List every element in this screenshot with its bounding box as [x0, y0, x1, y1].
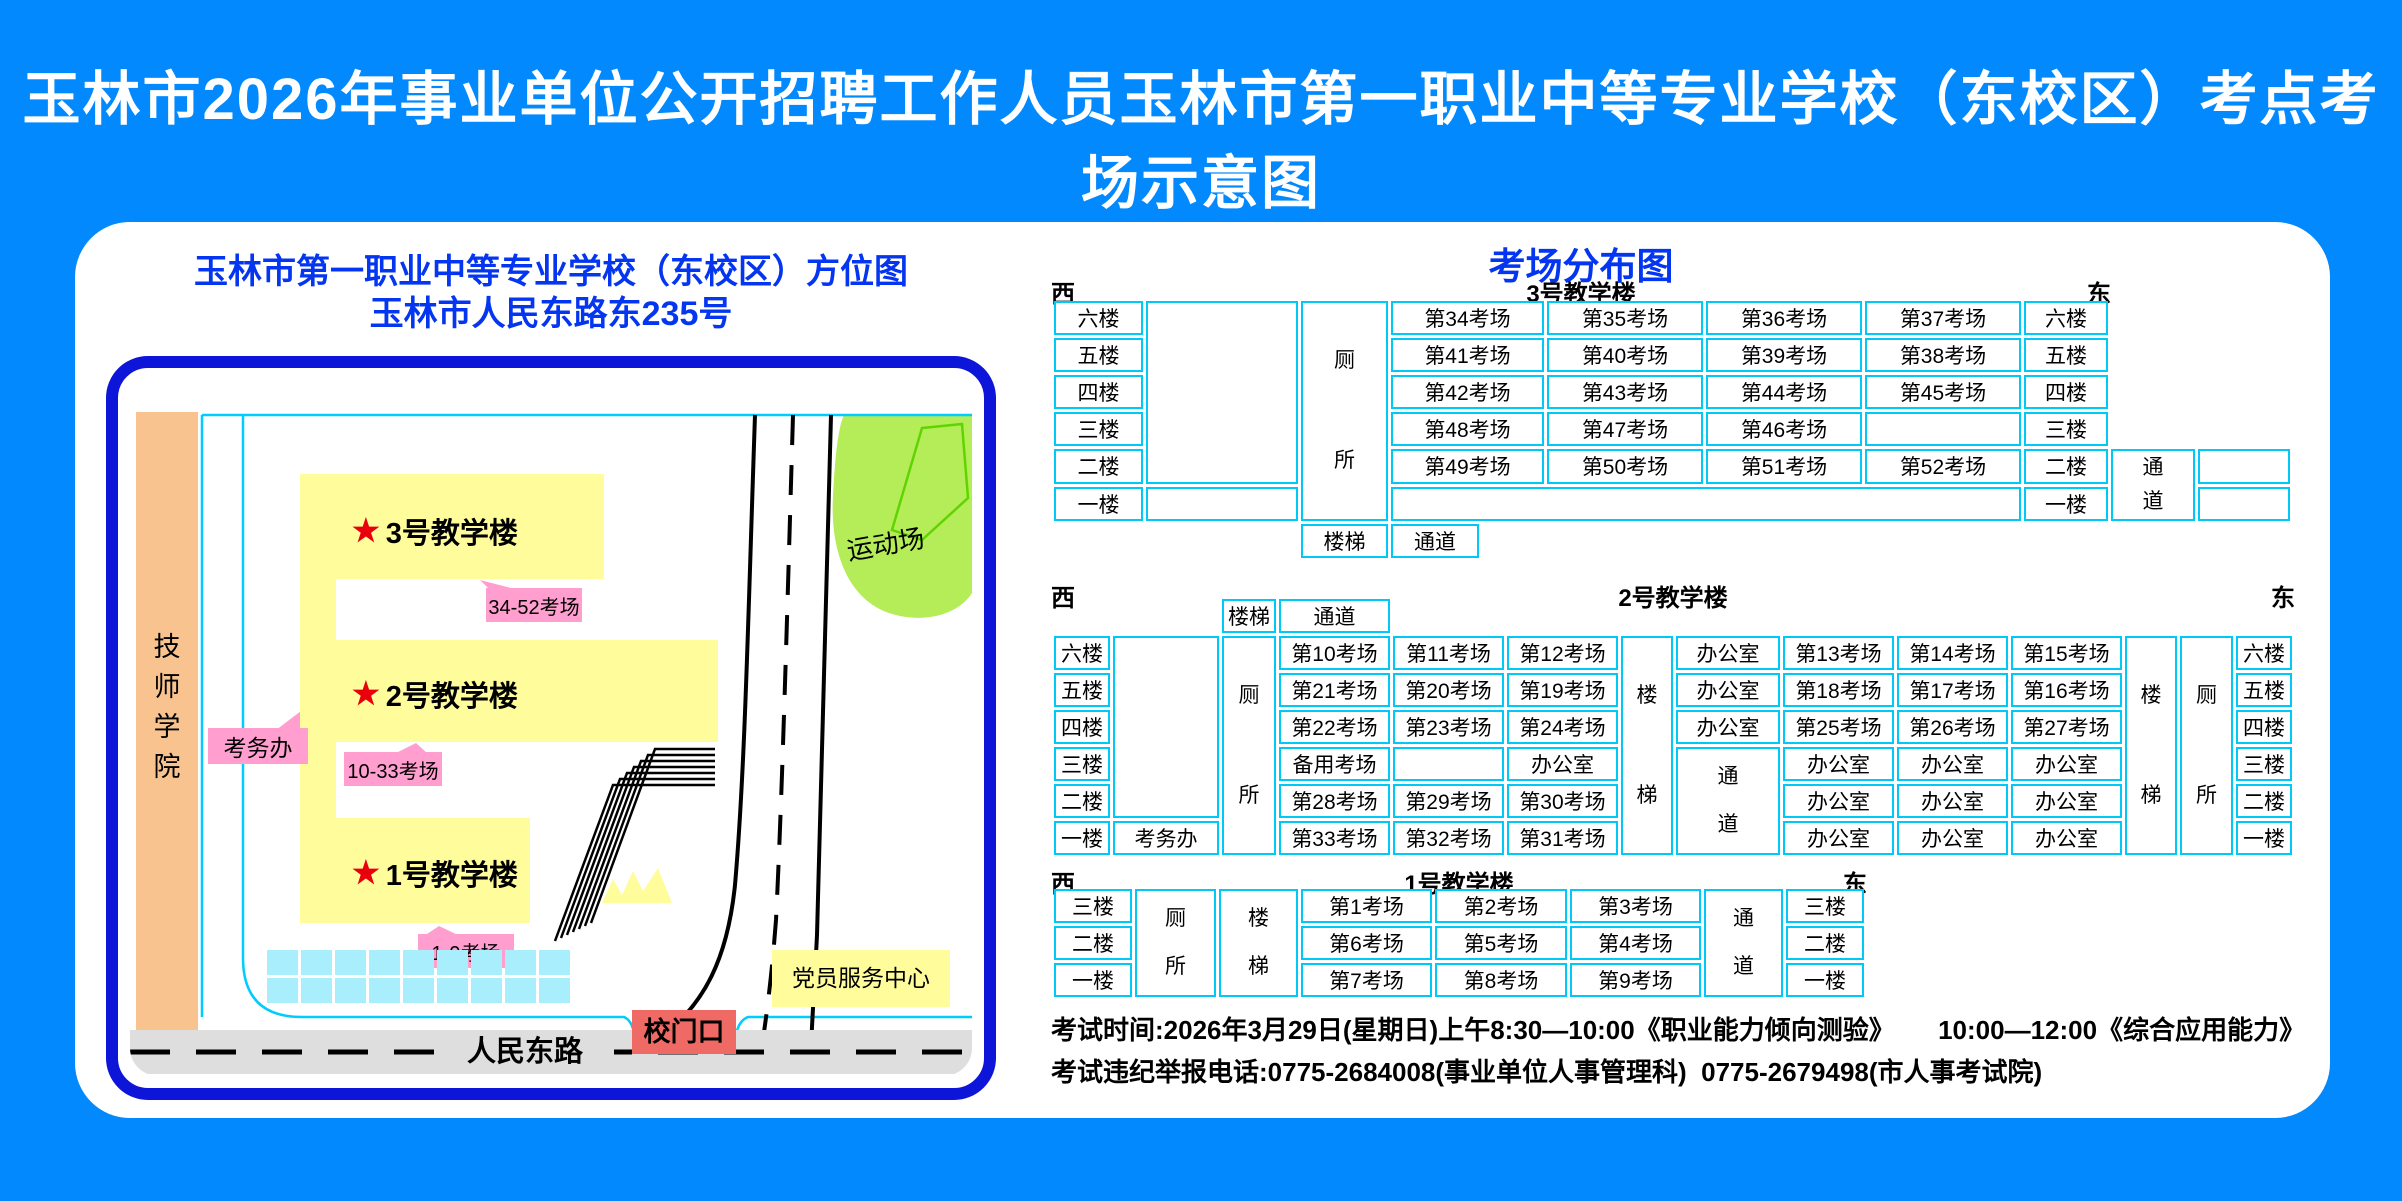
exam-time-note: 考试时间:2026年3月29日(星期日)上午8:30—10:00《职业能力倾向测…: [1051, 1010, 2305, 1047]
room-cell: 第26考场: [1897, 710, 2008, 744]
empty-cell: [1391, 487, 2021, 522]
spacer-cell: [2111, 338, 2195, 372]
parking-cell: [505, 978, 536, 1003]
spacer-cell: [1113, 599, 1219, 633]
room-cell: 四楼: [1054, 710, 1110, 744]
room-cell: 第7考场: [1301, 963, 1432, 997]
room-cell: 三楼: [1054, 747, 1110, 781]
spacer-cell: [1054, 599, 1110, 633]
room-cell: 二楼: [1786, 926, 1864, 960]
spacer-cell: [1482, 524, 1544, 558]
room-cell: 第14考场: [1897, 636, 2008, 670]
room-cell-vertical-text: 厕所: [1236, 646, 1262, 846]
neighbor-college-label: 技师学院: [152, 627, 182, 787]
room-cell: 六楼: [1054, 636, 1110, 670]
room-cell: 办公室: [2011, 784, 2122, 818]
star-icon: ★: [352, 855, 380, 891]
room-cell: 第22考场: [1279, 710, 1390, 744]
room-cell: 四楼: [2024, 375, 2108, 409]
room-cell: 一楼: [1054, 487, 1143, 522]
parking-cell: [539, 978, 570, 1003]
room-cell: 第44考场: [1706, 375, 1862, 409]
room-cell: 第5考场: [1435, 926, 1567, 960]
room-cell: 第19考场: [1507, 673, 1618, 707]
spacer-cell: [1507, 599, 1618, 633]
room-cell: 一楼: [1786, 963, 1864, 997]
room-cell: 第12考场: [1507, 636, 1618, 670]
room-cell: 第45考场: [1865, 375, 2021, 409]
room-cell: 厕所: [2180, 636, 2233, 855]
school-gate-label: 校门口: [632, 1010, 736, 1054]
room-cell: 第50考场: [1547, 449, 1703, 484]
room-cell-vertical-text: 通道: [1715, 753, 1741, 849]
content-panel: 玉林市第一职业中等专业学校（东校区）方位图 玉林市人民东路东235号: [75, 222, 2330, 1118]
spacer-cell: [1706, 524, 1862, 558]
parking-cell: [471, 978, 502, 1003]
room-cell: 第40考场: [1547, 338, 1703, 372]
room-cell: 第51考场: [1706, 449, 1862, 484]
room-cell: 第13考场: [1783, 636, 1894, 670]
empty-cell: [1113, 636, 1219, 818]
empty-cell: [1865, 412, 2021, 446]
room-cell: 一楼: [2236, 821, 2292, 855]
room-cell: 第39考场: [1706, 338, 1862, 372]
room-cell-vertical-text: 楼梯: [2138, 646, 2164, 846]
room-cell: 三楼: [1054, 412, 1143, 446]
parking-cell: [539, 950, 570, 975]
room-cell: 第6考场: [1301, 926, 1432, 960]
room-cell: 第31考场: [1507, 821, 1618, 855]
room-cell: 第30考场: [1507, 784, 1618, 818]
room-cell: 楼梯: [1621, 636, 1673, 855]
spacer-cell: [2198, 338, 2290, 372]
room-cell-vertical-text: 厕所: [1332, 311, 1358, 511]
parking-cell: [267, 950, 298, 975]
empty-cell: [1146, 487, 1298, 522]
room-cell-vertical-text: 通道: [2140, 451, 2166, 519]
room-cell: 四楼: [2236, 710, 2292, 744]
room-cell: 办公室: [1897, 821, 2008, 855]
campus-map-inner: 技师学院 ★ 3号教学楼 ★ 2号教学楼 ★ 1号教学楼: [130, 380, 972, 1076]
room-cell: 办公室: [2011, 821, 2122, 855]
room-cell: 四楼: [1054, 375, 1143, 409]
building-3-label: ★ 3号教学楼: [352, 510, 518, 552]
parking-cell: [403, 978, 434, 1003]
room-cell: 第52考场: [1865, 449, 2021, 484]
room-cell: 第11考场: [1393, 636, 1504, 670]
room-cell: 第1考场: [1301, 889, 1432, 923]
room-cell: 第20考场: [1393, 673, 1504, 707]
room-cell: 楼梯: [1301, 524, 1388, 558]
room-cell: 办公室: [1897, 784, 2008, 818]
room-cell: 第2考场: [1435, 889, 1567, 923]
room-cell: 办公室: [1783, 821, 1894, 855]
room-cell: 办公室: [1507, 747, 1618, 781]
parking-cell: [437, 950, 468, 975]
room-cell: 通道: [2111, 449, 2195, 521]
room-cell: 楼梯: [1219, 889, 1298, 997]
room-cell: 第46考场: [1706, 412, 1862, 446]
room-cell: 办公室: [2011, 747, 2122, 781]
building-2-label: ★ 2号教学楼: [352, 673, 518, 715]
steps-hatching: [555, 749, 715, 941]
neighbor-college-strip: 技师学院: [136, 412, 198, 1030]
room-cell: 一楼: [2024, 487, 2108, 522]
room-cell: 厕所: [1222, 636, 1276, 855]
room-cell: 办公室: [1783, 747, 1894, 781]
room-cell: 楼梯: [1222, 599, 1276, 633]
spacer-cell: [2236, 599, 2292, 633]
room-cell: 六楼: [2236, 636, 2292, 670]
spacer-cell: [1783, 599, 1894, 633]
room-cell: 第38考场: [1865, 338, 2021, 372]
room-cell: 三楼: [1786, 889, 1864, 923]
spacer-cell: [2180, 599, 2233, 633]
room-cell: 办公室: [1897, 747, 2008, 781]
room-cell: 第25考场: [1783, 710, 1894, 744]
room-table-2号教学楼: 楼梯通道六楼厕所第10考场第11考场第12考场楼梯办公室第13考场第14考场第1…: [1051, 596, 2295, 858]
spacer-cell: [2024, 524, 2108, 558]
empty-cell: [2198, 487, 2290, 522]
room-cell: 第35考场: [1547, 301, 1703, 335]
spacer-cell: [2111, 524, 2195, 558]
parking-cell: [403, 950, 434, 975]
room-cell: 第4考场: [1570, 926, 1701, 960]
room-cell: 楼梯: [2125, 636, 2177, 855]
parking-cell: [369, 950, 400, 975]
room-cell: 第28考场: [1279, 784, 1390, 818]
room-cell: 办公室: [1783, 784, 1894, 818]
room-cell: 一楼: [1054, 821, 1110, 855]
room-cell: 第21考场: [1279, 673, 1390, 707]
spacer-cell: [2198, 375, 2290, 409]
room-cell: 一楼: [1054, 963, 1132, 997]
room-cell: 通道: [1676, 747, 1780, 855]
room-cell: 厕所: [1135, 889, 1216, 997]
room-cell: 五楼: [1054, 673, 1110, 707]
room-cell: 第15考场: [2011, 636, 2122, 670]
spacer-cell: [1547, 524, 1703, 558]
room-table-3号教学楼: 六楼厕所第34考场第35考场第36考场第37考场六楼五楼第41考场第40考场第3…: [1051, 298, 2293, 561]
room-cell: 六楼: [2024, 301, 2108, 335]
spacer-cell: [2198, 412, 2290, 446]
room-cell: 第47考场: [1547, 412, 1703, 446]
party-service-center: 党员服务中心: [772, 950, 950, 1007]
room-cell: 第42考场: [1391, 375, 1544, 409]
room-cell: 通道: [1279, 599, 1390, 633]
building-1-label: ★ 1号教学楼: [352, 852, 518, 894]
room-cell: 第33考场: [1279, 821, 1390, 855]
room-cell: 办公室: [1676, 710, 1780, 744]
spacer-cell: [1054, 524, 1143, 558]
room-cell: 二楼: [1054, 449, 1143, 484]
spacer-cell: [2111, 412, 2195, 446]
map-title-line2: 玉林市人民东路东235号: [106, 286, 996, 335]
page-title: 玉林市2026年事业单位公开招聘工作人员玉林市第一职业中等专业学校（东校区）考点…: [0, 52, 2402, 220]
room-cell: 五楼: [2236, 673, 2292, 707]
room-cell-vertical-text: 厕所: [2194, 646, 2220, 846]
spacer-cell: [1146, 524, 1298, 558]
room-cell: 二楼: [1054, 926, 1132, 960]
campus-map: 技师学院 ★ 3号教学楼 ★ 2号教学楼 ★ 1号教学楼: [106, 356, 996, 1100]
room-cell: 第16考场: [2011, 673, 2122, 707]
parking-cell: [369, 978, 400, 1003]
room-cell: 三楼: [1054, 889, 1132, 923]
room-table-1号教学楼: 三楼厕所楼梯第1考场第2考场第3考场通道三楼二楼第6考场第5考场第4考场二楼一楼…: [1051, 886, 1867, 1000]
spacer-cell: [1676, 599, 1780, 633]
room-cell: 五楼: [1054, 338, 1143, 372]
room-cell: 厕所: [1301, 301, 1388, 521]
room-cell: 通道: [1704, 889, 1783, 997]
report-phone-note: 考试违纪举报电话:0775-2684008(事业单位人事管理科) 0775-26…: [1051, 1052, 2042, 1089]
room-cell: 第41考场: [1391, 338, 1544, 372]
star-icon: ★: [352, 513, 380, 549]
room-cell-vertical-text: 楼梯: [1634, 646, 1660, 846]
parking-cell: [335, 978, 366, 1003]
parking-cell: [471, 950, 502, 975]
room-cell: 第49考场: [1391, 449, 1544, 484]
spacer-cell: [1393, 599, 1504, 633]
room-cell: 第27考场: [2011, 710, 2122, 744]
room-cell-vertical-text: 厕所: [1163, 895, 1189, 991]
room-cell: 二楼: [1054, 784, 1110, 818]
room-cell: 第24考场: [1507, 710, 1618, 744]
spacer-cell: [2011, 599, 2122, 633]
room-cell: 第37考场: [1865, 301, 2021, 335]
room-cell: 考务办: [1113, 821, 1219, 855]
room-cell: 第10考场: [1279, 636, 1390, 670]
landscape-shape: [602, 868, 672, 903]
room-cell-vertical-text: 楼梯: [1246, 895, 1272, 991]
spacer-cell: [2111, 375, 2195, 409]
room-cell: 备用考场: [1279, 747, 1390, 781]
spacer-cell: [1865, 524, 2021, 558]
exam-venue-poster: 玉林市2026年事业单位公开招聘工作人员玉林市第一职业中等专业学校（东校区）考点…: [0, 0, 2402, 1201]
room-cell: 第29考场: [1393, 784, 1504, 818]
parking-cell: [437, 978, 468, 1003]
star-icon: ★: [352, 676, 380, 712]
parking-grid: [267, 950, 570, 1003]
room-cell: 第9考场: [1570, 963, 1701, 997]
rooms-callout-building3: 34-52考场: [486, 588, 582, 622]
spacer-cell: [2125, 599, 2177, 633]
room-cell: 第48考场: [1391, 412, 1544, 446]
spacer-cell: [1621, 599, 1673, 633]
empty-cell: [1146, 301, 1298, 484]
room-cell: 三楼: [2236, 747, 2292, 781]
room-cell: 三楼: [2024, 412, 2108, 446]
street-name-label: 人民东路: [436, 1033, 614, 1071]
room-cell: 第18考场: [1783, 673, 1894, 707]
parking-cell: [301, 950, 332, 975]
room-cell: 第32考场: [1393, 821, 1504, 855]
parking-cell: [301, 978, 332, 1003]
room-cell: 通道: [1391, 524, 1479, 558]
room-cell: 二楼: [2024, 449, 2108, 484]
empty-cell: [1393, 747, 1504, 781]
room-cell: 第23考场: [1393, 710, 1504, 744]
spacer-cell: [2111, 301, 2195, 335]
parking-cell: [335, 950, 366, 975]
parking-cell: [267, 978, 298, 1003]
parking-cell: [505, 950, 536, 975]
room-cell: 六楼: [1054, 301, 1143, 335]
spacer-cell: [2198, 301, 2290, 335]
room-cell: 第3考场: [1570, 889, 1701, 923]
empty-cell: [2198, 449, 2290, 484]
room-cell: 二楼: [2236, 784, 2292, 818]
rooms-callout-building2: 10-33考场: [344, 752, 442, 786]
room-cell: 第36考场: [1706, 301, 1862, 335]
room-cell: 第34考场: [1391, 301, 1544, 335]
room-cell: 办公室: [1676, 673, 1780, 707]
exam-office-callout: 考务办: [208, 728, 308, 764]
room-cell-vertical-text: 通道: [1731, 895, 1757, 991]
room-cell: 办公室: [1676, 636, 1780, 670]
room-cell: 五楼: [2024, 338, 2108, 372]
room-cell: 第43考场: [1547, 375, 1703, 409]
spacer-cell: [1897, 599, 2008, 633]
room-cell: 第8考场: [1435, 963, 1567, 997]
room-cell: 第17考场: [1897, 673, 2008, 707]
